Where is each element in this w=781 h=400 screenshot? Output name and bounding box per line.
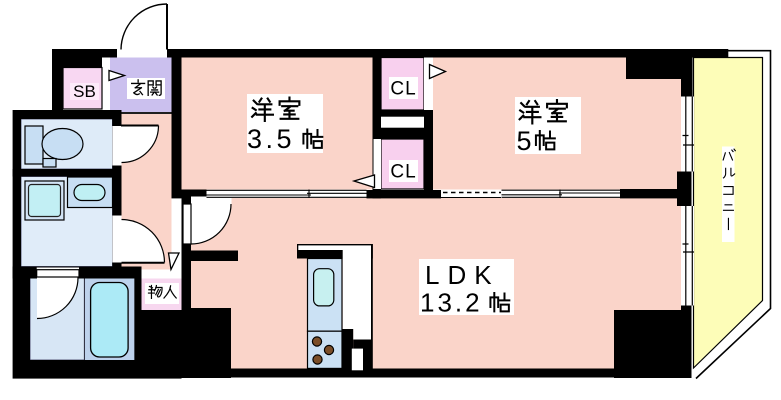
svg-text:13.2: 13.2 <box>420 288 483 318</box>
svg-text:3.5: 3.5 <box>247 124 295 154</box>
svg-text:5: 5 <box>517 126 532 156</box>
svg-text:CL: CL <box>390 79 416 100</box>
svg-text:LDK: LDK <box>425 260 500 290</box>
svg-text:SB: SB <box>73 82 96 101</box>
svg-text:CL: CL <box>390 162 416 183</box>
